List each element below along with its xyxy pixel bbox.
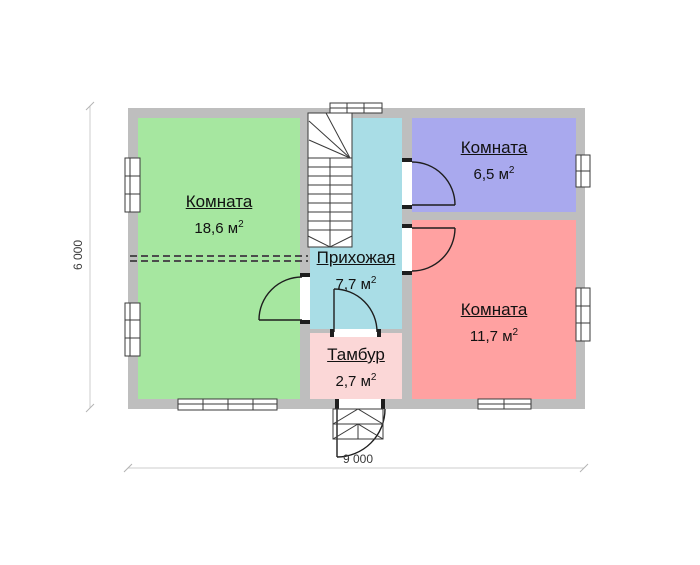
entrance-door	[337, 409, 385, 457]
room-name: Комната	[412, 300, 576, 320]
label-room-small: Комната 6,5 м2	[412, 138, 576, 183]
room-name: Тамбур	[302, 345, 410, 365]
hallway-fill	[310, 118, 402, 329]
label-hallway: Прихожая 7,7 м2	[305, 248, 407, 293]
room-area: 6,5 м2	[412, 165, 576, 183]
label-room-large: Комната 18,6 м2	[138, 192, 300, 237]
dimension-width: 9 000	[326, 452, 390, 466]
floor-plan: Комната 18,6 м2 Комната 6,5 м2 Комната 1…	[0, 0, 700, 565]
label-tambour: Тамбур 2,7 м2	[302, 345, 410, 390]
room-name: Комната	[412, 138, 576, 158]
room-name: Комната	[138, 192, 300, 212]
dimension-height: 6 000	[71, 223, 85, 287]
room-area: 7,7 м2	[305, 275, 407, 293]
entrance-porch	[333, 409, 383, 439]
label-room-medium: Комната 11,7 м2	[412, 300, 576, 345]
room-large-fill	[138, 118, 300, 399]
room-name: Прихожая	[305, 248, 407, 268]
room-area: 2,7 м2	[302, 372, 410, 390]
room-area: 18,6 м2	[138, 219, 300, 237]
room-area: 11,7 м2	[412, 327, 576, 345]
